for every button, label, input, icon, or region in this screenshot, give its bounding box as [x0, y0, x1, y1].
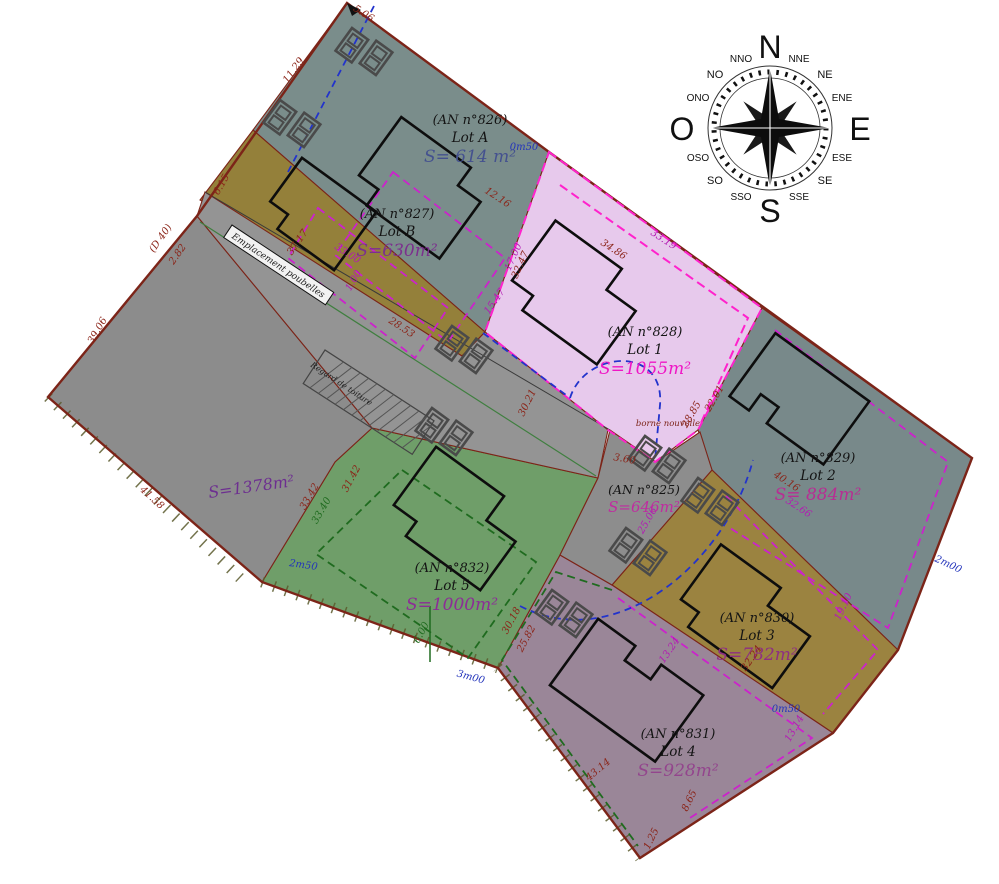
dim-label: 0m50 — [510, 142, 539, 153]
lot-4-an: (AN n°831) — [641, 727, 716, 742]
compass-n: N — [758, 29, 781, 65]
compass-s: S — [759, 193, 780, 229]
lot-5-name: Lot 5 — [433, 578, 469, 594]
compass-oso: OSO — [687, 153, 709, 164]
lot-a-an: (AN n°826) — [433, 113, 508, 128]
lot-1-area: S=1055m² — [599, 359, 691, 379]
compass-so: SO — [707, 175, 723, 187]
compass-e: E — [849, 111, 870, 147]
lot-3-an: (AN n°830) — [720, 611, 795, 626]
compass-rose: N S E O NNE NE ENE ESE SE SSE SSO SO OSO… — [670, 29, 871, 229]
lot-5-an: (AN n°832) — [415, 561, 490, 576]
dim-label: 3m00 — [455, 669, 486, 687]
lot-b-name: Lot B — [378, 224, 416, 240]
compass-nne: NNE — [788, 54, 809, 65]
compass-ne: NE — [817, 69, 832, 81]
site-plan-svg: (AN n°826) Lot A S= 614 m² (AN n°827) Lo… — [0, 0, 999, 884]
compass-sse: SSE — [789, 192, 809, 203]
site-plan-page: (AN n°826) Lot A S= 614 m² (AN n°827) Lo… — [0, 0, 999, 884]
lot-1-an: (AN n°828) — [608, 325, 683, 340]
parcels — [48, 3, 972, 858]
common-area-value: S=646m² — [608, 498, 680, 516]
dim-label: 2m00 — [932, 553, 964, 576]
common-an: (AN n°825) — [608, 482, 680, 497]
lot-1-name: Lot 1 — [626, 342, 662, 358]
dim-label: 0m50 — [772, 704, 801, 715]
compass-nno: NNO — [730, 54, 752, 65]
compass-o: O — [670, 111, 695, 147]
lot-a-area: S= 614 m² — [424, 147, 516, 167]
compass-ono: ONO — [687, 93, 710, 104]
compass-no: NO — [707, 69, 724, 81]
lot-4-name: Lot 4 — [659, 744, 695, 760]
compass-se: SE — [818, 175, 833, 187]
compass-ese: ESE — [832, 153, 852, 164]
lot-3-name: Lot 3 — [738, 628, 774, 644]
compass-ene: ENE — [832, 93, 853, 104]
lot-2-name: Lot 2 — [799, 468, 835, 484]
lot-b-an: (AN n°827) — [360, 207, 435, 222]
lot-b-area: S=630m² — [356, 241, 437, 261]
lot-4-area: S=928m² — [637, 761, 718, 781]
lot-a-name: Lot A — [451, 130, 489, 146]
compass-sso: SSO — [730, 192, 751, 203]
label-common: (AN n°825) S=646m² — [608, 482, 680, 516]
lot-2-an: (AN n°829) — [781, 451, 856, 466]
lot-5-area: S=1000m² — [406, 595, 498, 615]
